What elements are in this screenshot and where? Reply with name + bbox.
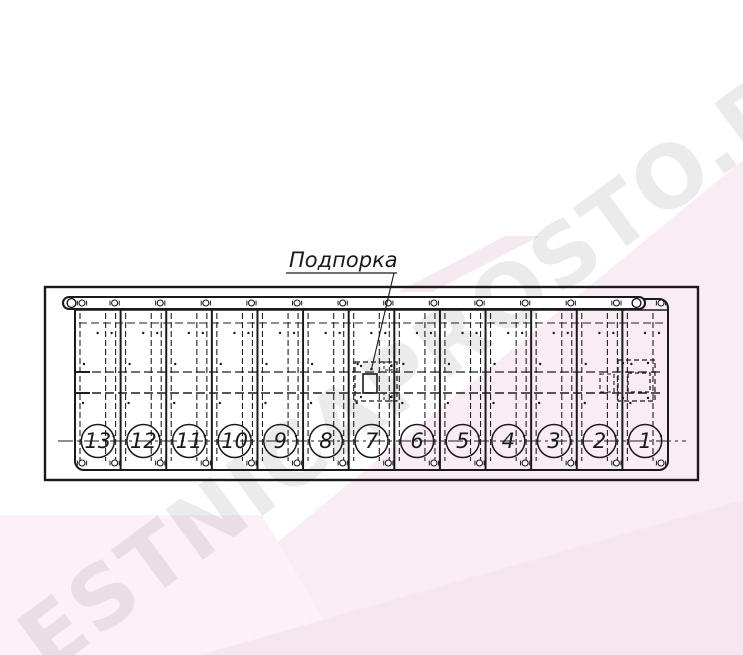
screw-dot <box>430 332 432 334</box>
screw-dot <box>598 332 600 334</box>
screw-dot <box>416 332 418 334</box>
screw-dot <box>219 402 221 404</box>
screw-dot <box>202 332 204 334</box>
screw-dot <box>475 332 477 334</box>
screw-dot <box>188 332 190 334</box>
screw-dot <box>311 363 313 365</box>
step-number-badge: 13 <box>81 425 114 458</box>
screw-dot <box>279 332 281 334</box>
step-number: 8 <box>319 429 332 453</box>
step-number: 12 <box>130 429 157 453</box>
screw-dot <box>142 332 144 334</box>
screw-dot <box>264 402 266 404</box>
mounting-rail <box>63 297 645 309</box>
screw-dot <box>630 363 632 365</box>
screw-dot <box>220 363 222 365</box>
step-number: 4 <box>502 429 515 453</box>
screw-dot <box>567 332 569 334</box>
screw-dot <box>128 363 130 365</box>
screw-dot <box>448 363 450 365</box>
screw-dot <box>493 363 495 365</box>
bolt-icon <box>656 460 665 466</box>
step-number: 1 <box>639 429 652 453</box>
step-number: 5 <box>456 429 469 453</box>
screw-dot <box>507 332 509 334</box>
screw-dot <box>265 363 267 365</box>
bolt-icon <box>201 460 210 466</box>
step-number: 3 <box>547 429 560 453</box>
screw-dot <box>402 363 404 365</box>
step-number: 9 <box>274 429 287 453</box>
bolt-icon <box>384 460 393 466</box>
bolt-icon <box>475 460 484 466</box>
screw-dot <box>83 363 85 365</box>
screw-dot <box>492 402 494 404</box>
screw-dot <box>174 363 176 365</box>
bolt-icon <box>292 460 301 466</box>
bolt-icon <box>110 460 119 466</box>
screw-dot <box>521 332 523 334</box>
bolt-icon <box>338 460 347 466</box>
step-number: 7 <box>365 429 379 453</box>
screw-dot <box>553 332 555 334</box>
screw-dot <box>338 332 340 334</box>
screw-dot <box>384 332 386 334</box>
bolt-icon <box>247 460 256 466</box>
leader-tip-dot <box>370 368 373 371</box>
screw-dot <box>96 332 98 334</box>
screw-dot <box>370 332 372 334</box>
screw-dot <box>447 402 449 404</box>
screw-dot <box>612 332 614 334</box>
staircase-plan-drawing: 13121110987654321 Подпорк <box>0 0 743 655</box>
step-number: 2 <box>593 429 606 453</box>
bolt-icon <box>521 460 530 466</box>
screw-dot <box>401 402 403 404</box>
screw-dot <box>247 332 249 334</box>
bolt-icon <box>156 460 165 466</box>
step-number-badge: 11 <box>173 425 206 458</box>
screw-dot <box>310 402 312 404</box>
screw-dot <box>233 332 235 334</box>
screw-dot <box>658 332 660 334</box>
step-number: 11 <box>176 429 203 453</box>
screw-dot <box>584 402 586 404</box>
hidden-horizontal-lines <box>75 323 664 393</box>
screw-dot <box>461 332 463 334</box>
screw-dot <box>644 332 646 334</box>
screw-dot <box>629 402 631 404</box>
step-number: 10 <box>221 429 248 453</box>
support-label: Подпорка <box>289 248 398 272</box>
screw-dot <box>324 332 326 334</box>
screw-marks <box>82 332 662 437</box>
screw-dot <box>585 363 587 365</box>
support-detail <box>355 362 397 401</box>
screw-dot <box>156 332 158 334</box>
bolt-icon <box>77 460 86 466</box>
bolt-icon <box>566 460 575 466</box>
step-number: 13 <box>84 429 111 453</box>
screw-dot <box>355 402 357 404</box>
screw-dot <box>127 402 129 404</box>
step-number-badge: 10 <box>218 425 251 458</box>
screw-dot <box>82 402 84 404</box>
screw-dot <box>539 363 541 365</box>
screw-dot <box>110 332 112 334</box>
bolt-icon <box>429 460 438 466</box>
step-number-badge: 12 <box>127 425 160 458</box>
bolt-icon <box>612 460 621 466</box>
page: LESTNICAPROSTO.RU 1312111098765 <box>0 0 743 655</box>
screw-dot <box>173 402 175 404</box>
screw-dot <box>538 402 540 404</box>
screw-dot <box>293 332 295 334</box>
screw-dot <box>356 363 358 365</box>
step-number: 6 <box>410 429 423 453</box>
